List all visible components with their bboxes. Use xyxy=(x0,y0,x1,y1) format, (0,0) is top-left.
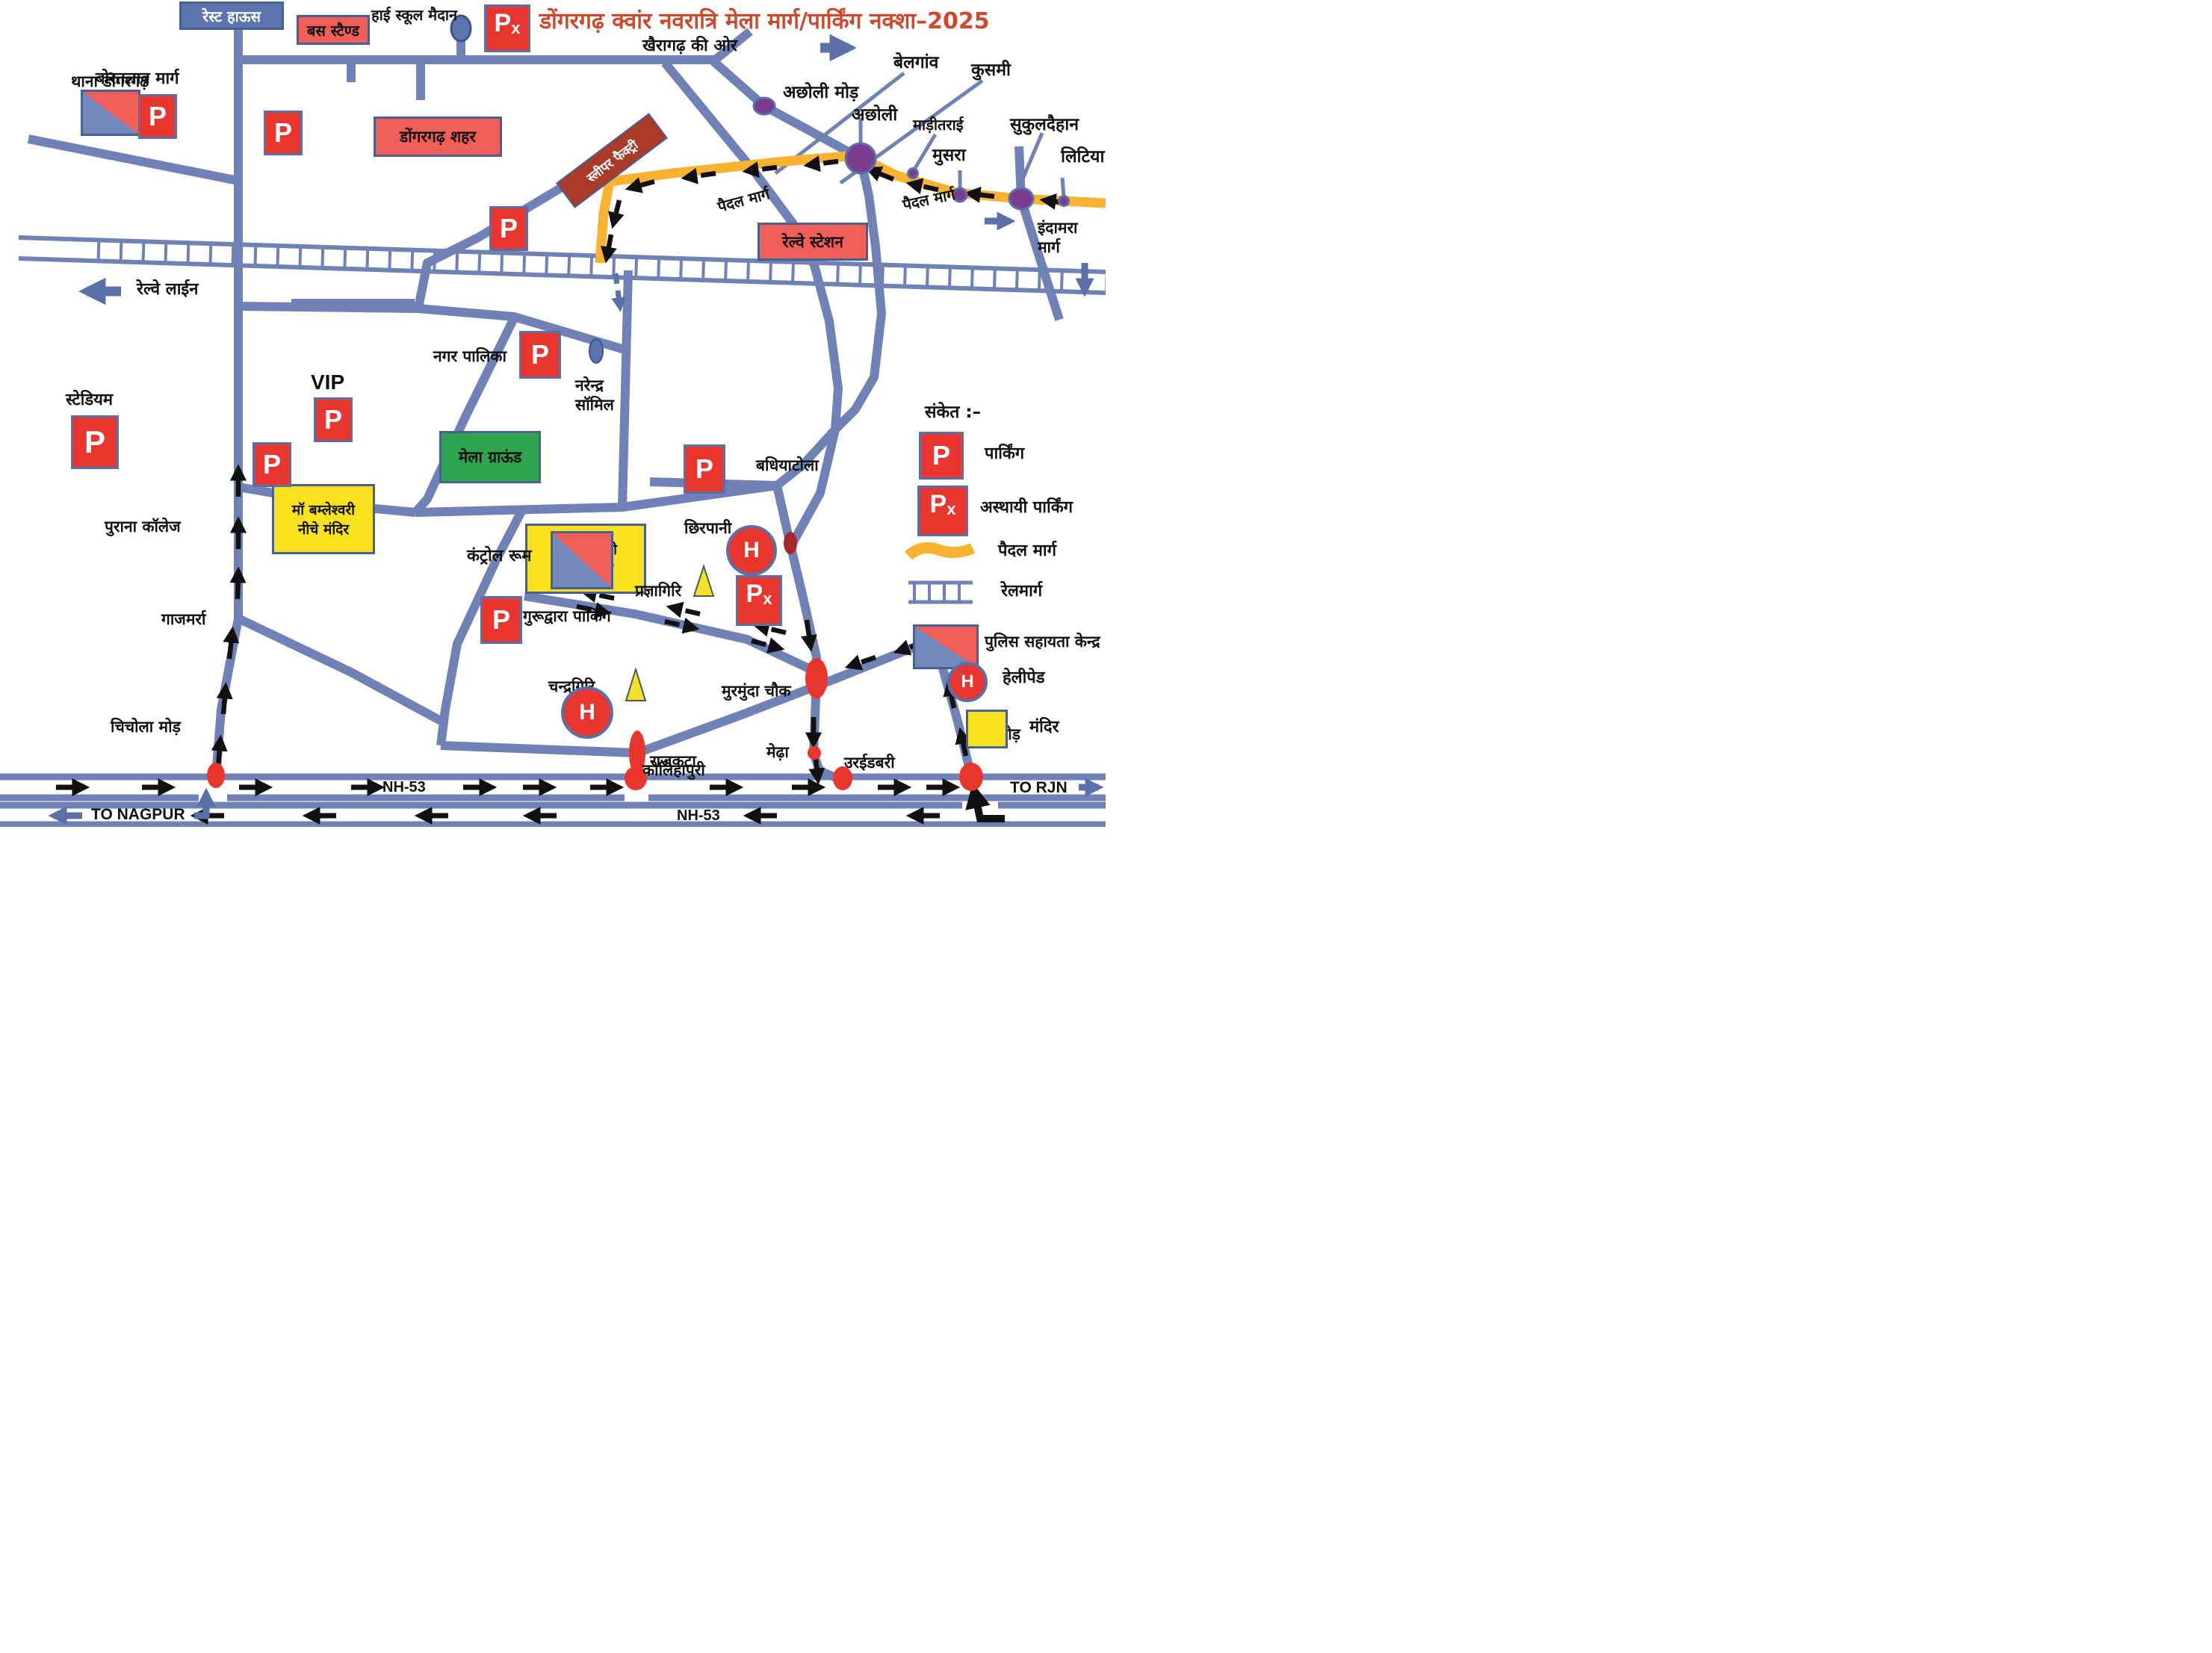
px-x: x xyxy=(947,498,955,521)
label-indamara-line1: इंदामरा xyxy=(1038,218,1078,238)
legend-footpath-label: पैदल मार्ग xyxy=(998,541,1056,562)
px-p: P xyxy=(930,488,947,522)
parking-nagar-palika: P xyxy=(519,331,561,379)
label-acholi-mod: अछोली मोड़ xyxy=(783,82,858,104)
label-badhiyatola: बधियाटोला xyxy=(756,456,819,475)
label-to-rjn: TO RJN xyxy=(1010,778,1068,798)
label-sukuldehan: सुकुलदैहान xyxy=(1010,114,1079,136)
temple-lower-line1: मॉ बम्लेश्वरी xyxy=(292,500,355,519)
label-kusmi: कुसमी xyxy=(971,60,1011,81)
temple-lower-line2: नीचे मंदिर xyxy=(298,519,349,539)
label-chichola-mod: चिचोला मोड़ xyxy=(111,717,181,736)
label-indamara: इंदामरा मार्ग xyxy=(1038,218,1078,258)
label-pragyagiri: प्रज्ञागिरि xyxy=(635,581,681,601)
nh53-lane-arrows xyxy=(56,787,955,816)
parking-thana: P xyxy=(138,94,177,139)
legend-temp-parking-label: अस्थायी पार्किंग xyxy=(980,497,1073,518)
parking-gurudwara: P xyxy=(480,596,522,644)
label-kolihapuri: कोलिहापुरी xyxy=(642,760,705,780)
parking-city-west: P xyxy=(264,111,303,155)
label-narendra-sawmill: नरेन्द्र सॉमिल xyxy=(575,376,614,415)
label-thana: थाना डोगरगढ़ xyxy=(71,72,149,91)
temp-parking-high-school: Px xyxy=(484,4,530,52)
legend-helipad-label: हेलीपेड xyxy=(1003,668,1045,689)
roads-main xyxy=(28,26,1059,780)
label-chhirpani: छिरपानी xyxy=(684,518,731,538)
px-p: P xyxy=(746,577,763,612)
label-medha: मेढ़ा xyxy=(766,742,789,762)
parking-vip: P xyxy=(314,397,353,442)
label-acholi: अछोली xyxy=(852,105,897,126)
bus-stand-box: बस स्टैण्ड xyxy=(297,15,370,45)
railway-station-box: रेल्वे स्टेशन xyxy=(758,223,868,261)
legend-footpath-icon xyxy=(908,548,973,556)
label-narendra-line2: सॉमिल xyxy=(575,395,614,415)
chandragiri-triangle-icon xyxy=(626,669,645,701)
label-narendra-line1: नरेन्द्र xyxy=(575,376,614,395)
label-nagar-palika: नगर पालिका xyxy=(433,347,506,366)
label-gajmarra: गाजमर्रा xyxy=(161,610,205,629)
label-stadium: स्टेडियम xyxy=(66,390,113,411)
page-title: डोंगरगढ़ क्वांर नवरात्रि मेला मार्ग/पार्… xyxy=(539,4,990,35)
label-uraidabri: उरईडबरी xyxy=(844,753,895,772)
label-vip: VIP xyxy=(311,369,344,395)
legend-temple-label: मंदिर xyxy=(1029,717,1059,738)
label-litiya: लिटिया xyxy=(1061,146,1104,168)
label-nh53-bottom: NH-53 xyxy=(677,807,720,825)
legend-parking-label: पार्किंग xyxy=(985,444,1024,465)
parking-left-road: P xyxy=(253,442,291,487)
parking-station: P xyxy=(489,206,528,251)
dongargarh-city-box: डोंगरगढ़ शहर xyxy=(374,117,502,157)
parking-stadium: P xyxy=(71,415,119,469)
label-high-school: हाई स्कूल मैदान xyxy=(371,6,457,25)
rest-house-box: रेस्ट हाऊस xyxy=(179,1,284,30)
legend-railway-icon xyxy=(908,583,973,602)
label-gurudwara-parking: गुरूद्वारा पार्किंग xyxy=(523,607,611,626)
label-railway-line: रेल्वे लाईन xyxy=(137,279,198,300)
label-purana-college: पुराना कॉलेज xyxy=(105,517,181,536)
px-x: x xyxy=(763,588,772,610)
label-indamara-line2: मार्ग xyxy=(1038,238,1078,257)
police-icon-thana xyxy=(81,90,140,136)
legend-temp-parking-icon: Px xyxy=(917,486,968,536)
label-belgaon: बेलगांव xyxy=(893,52,938,74)
px-x: x xyxy=(511,17,520,40)
label-khairagarh: खैरागढ़ की ओर xyxy=(642,36,737,57)
helipad-chhirpani: H xyxy=(726,525,777,576)
label-maditarai: माड़ीतराई xyxy=(913,116,964,134)
narendra-sawmill-dot xyxy=(589,339,603,363)
helipad-rajkata: H xyxy=(561,686,613,739)
legend-railway-label: रेलमार्ग xyxy=(1001,581,1042,602)
legend-helipad-icon: H xyxy=(947,662,988,702)
label-musra: मुसरा xyxy=(932,145,966,167)
police-icon-control-room xyxy=(551,531,613,589)
parking-chhirpani: P xyxy=(684,444,725,494)
pragyagiri-triangle-icon xyxy=(694,566,713,596)
mela-parking-map: डोंगरगढ़ क्वांर नवरात्रि मेला मार्ग/पार्… xyxy=(0,0,1106,827)
px-p: P xyxy=(495,7,512,41)
temp-parking-murmunda: Px xyxy=(736,575,782,626)
mela-ground-box: मेला ग्राऊंड xyxy=(439,431,541,483)
label-nh53-top: NH-53 xyxy=(382,778,426,797)
legend-heading: संकेत :– xyxy=(925,402,981,424)
legend-parking-icon: P xyxy=(919,432,964,480)
legend-police-label: पुलिस सहायता केन्द्र xyxy=(985,632,1100,651)
bamleshwari-lower-temple-box: मॉ बम्लेश्वरी नीचे मंदिर xyxy=(272,484,375,554)
label-control-room: कंट्रोल रूम xyxy=(467,546,532,567)
label-murmunda-chowk: मुरमुंदा चौक xyxy=(722,681,791,701)
label-to-nagpur: TO NAGPUR xyxy=(91,805,185,825)
legend-temple-icon xyxy=(966,710,1008,748)
